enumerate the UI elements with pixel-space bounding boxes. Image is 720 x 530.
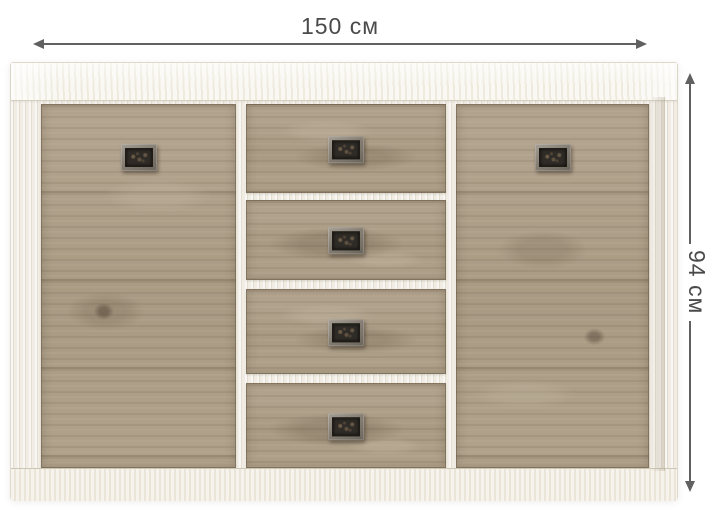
drawer-3-handle-icon — [328, 319, 364, 346]
drawer-4-handle-icon — [328, 413, 364, 440]
drawer-1 — [246, 104, 446, 193]
drawer-3 — [246, 289, 446, 374]
sideboard — [10, 62, 678, 500]
cabinet-top-panel — [11, 63, 677, 101]
height-dimension-label-wrap: 94 см — [683, 75, 710, 490]
arrow-right-icon — [636, 39, 647, 49]
left-door — [41, 104, 236, 468]
cabinet-right-edge-shade — [650, 97, 665, 471]
arrow-left-icon — [33, 39, 44, 49]
cabinet-base-plinth — [11, 468, 677, 501]
width-dimension-label: 150 см — [35, 13, 645, 40]
height-dimension-label: 94 см — [683, 244, 710, 320]
drawer-2-handle-icon — [328, 227, 364, 254]
right-door — [456, 104, 649, 468]
drawer-4 — [246, 383, 446, 468]
left-door-handle-icon — [121, 144, 157, 171]
width-dimension-line — [35, 43, 645, 45]
right-door-handle-icon — [535, 144, 571, 171]
drawer-1-handle-icon — [328, 136, 364, 163]
drawer-2 — [246, 200, 446, 280]
furniture-dimension-diagram: 150 см 94 см — [0, 0, 720, 530]
